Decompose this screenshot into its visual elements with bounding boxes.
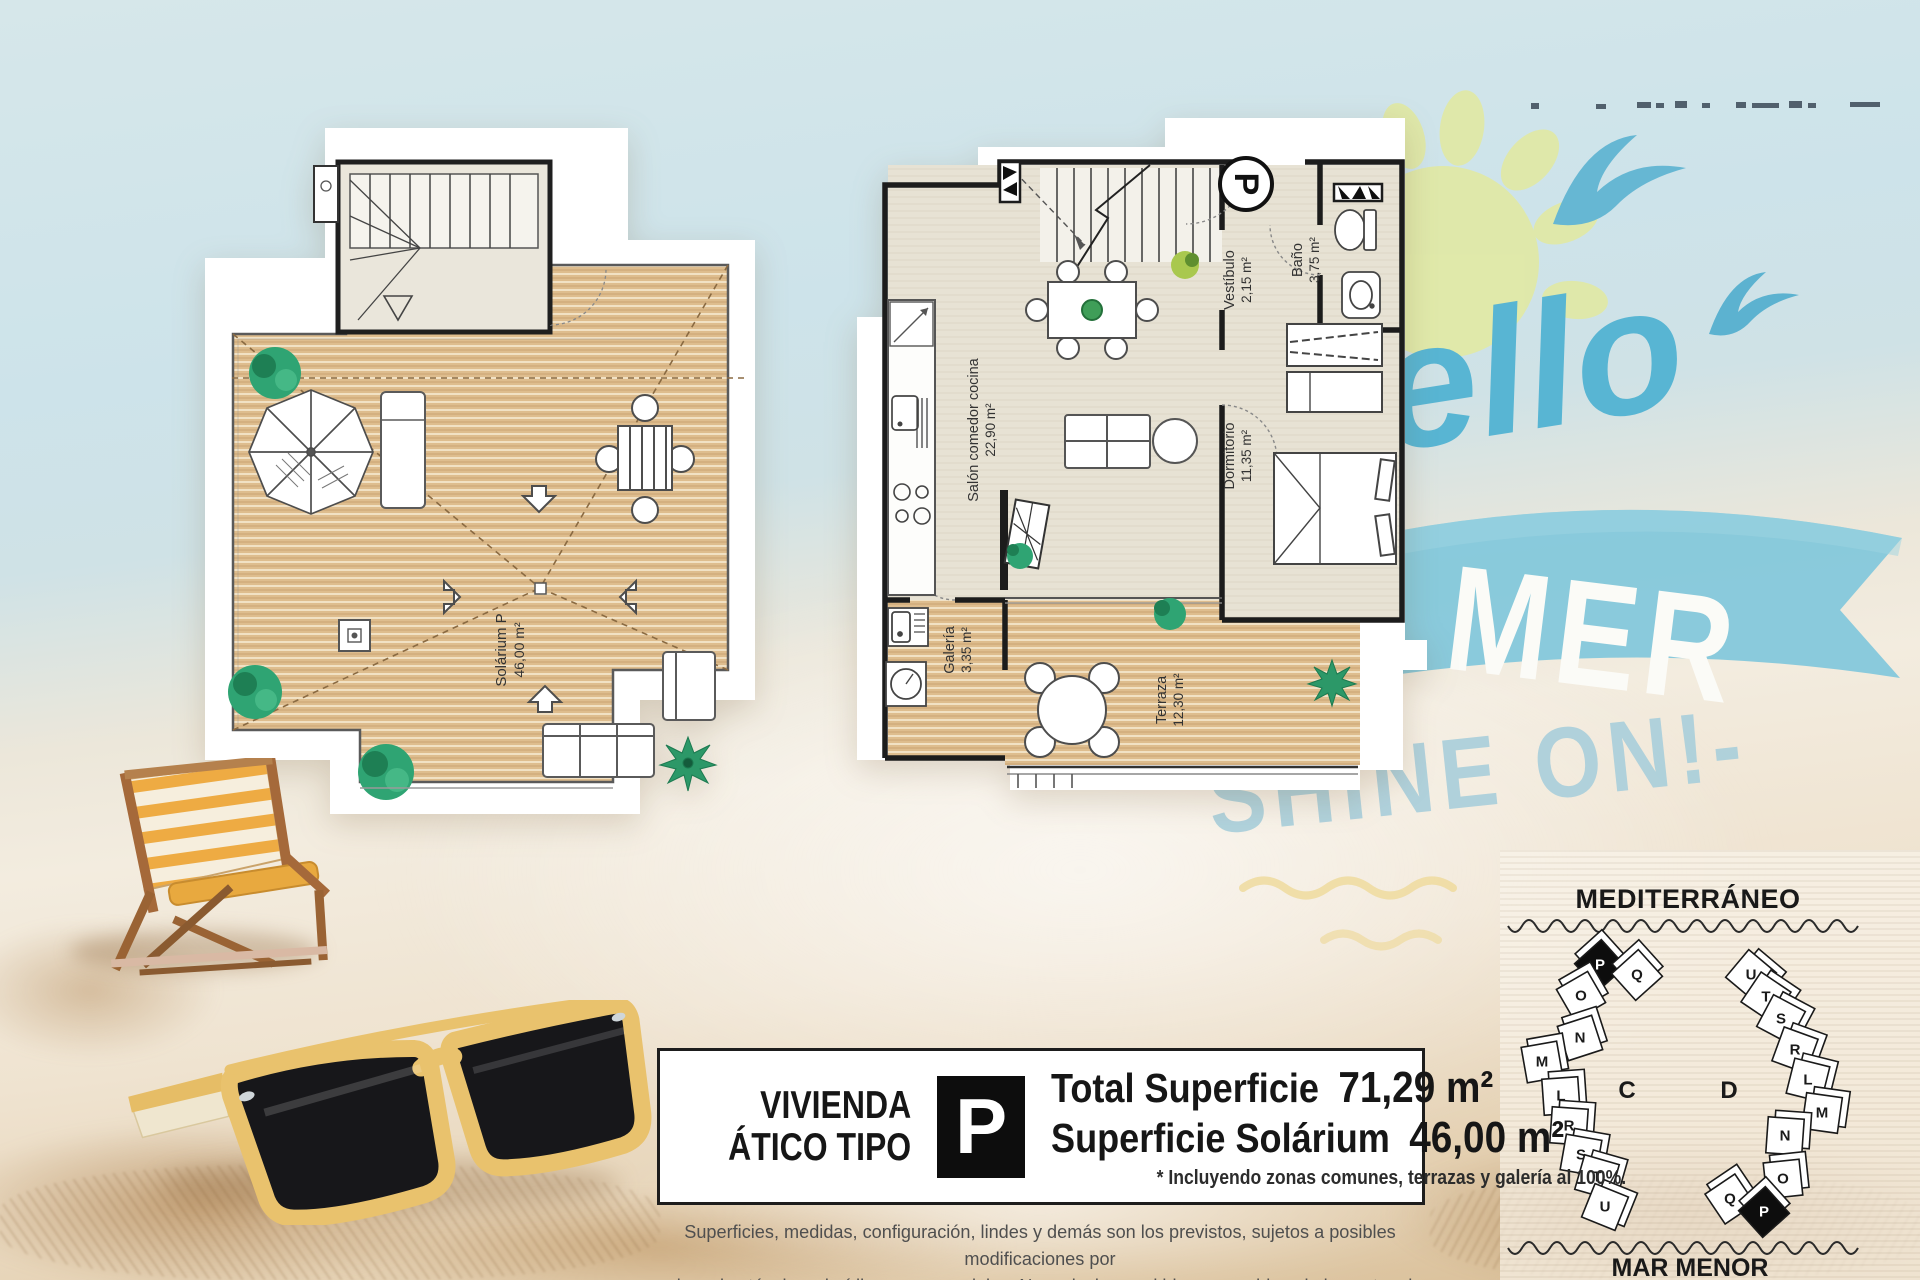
svg-text:N: N <box>1575 1030 1586 1047</box>
parking-circle-icon: P <box>1220 158 1272 210</box>
svg-text:Solárium P: Solárium P <box>493 613 510 686</box>
solarium-surface-value: 46,00 m² <box>1409 1113 1564 1163</box>
svg-text:O: O <box>1777 1171 1789 1188</box>
seagull-icon <box>1709 272 1799 335</box>
svg-text:N: N <box>1780 1128 1791 1145</box>
dwelling-type-label: VIVIENDA ÁTICO TIPO <box>728 1085 911 1169</box>
svg-text:11,35 m²: 11,35 m² <box>1239 429 1254 482</box>
solarium-deck <box>233 265 728 782</box>
apartment-floor-plan: P <box>850 110 1435 825</box>
svg-text:22,90 m²: 22,90 m² <box>983 403 998 457</box>
svg-text:Q: Q <box>1631 967 1643 984</box>
svg-text:2,15 m²: 2,15 m² <box>1239 257 1254 303</box>
solarium-surface-label: Superficie Solárium <box>1051 1115 1390 1162</box>
svg-text:L: L <box>1803 1072 1812 1089</box>
svg-text:P: P <box>1595 957 1605 974</box>
svg-text:M: M <box>1816 1105 1829 1122</box>
deckchair-photo <box>80 758 340 978</box>
star-plant <box>660 737 716 791</box>
svg-text:Salón comedor cocina: Salón comedor cocina <box>966 357 982 501</box>
svg-text:12,30 m²: 12,30 m² <box>1171 673 1186 727</box>
sea-north-label: MEDITERRÁNEO <box>1575 883 1800 914</box>
surface-figures: Total Superficie 71,29 m² Superficie Sol… <box>1051 1063 1626 1190</box>
svg-text:R: R <box>1790 1042 1801 1059</box>
type-badge: P <box>937 1076 1025 1178</box>
svg-text:46,00 m²: 46,00 m² <box>511 622 527 678</box>
svg-text:Q: Q <box>1724 1191 1736 1208</box>
kitchen-counter <box>888 300 935 595</box>
svg-text:Galería: Galería <box>942 625 958 673</box>
svg-text:Terraza: Terraza <box>1154 675 1170 724</box>
block-label-d: D <box>1720 1077 1737 1104</box>
sofa-set <box>1065 415 1197 468</box>
svg-text:P: P <box>1759 1204 1769 1221</box>
total-surface-label: Total Superficie <box>1051 1065 1319 1112</box>
legal-disclaimer: Superficies, medidas, configuración, lin… <box>648 1218 1432 1280</box>
shower-tray <box>1287 324 1382 366</box>
svg-text:Dormitorio: Dormitorio <box>1222 423 1238 490</box>
seagull-icon <box>1553 135 1686 225</box>
sun-lounger <box>381 392 425 508</box>
svg-text:Vestíbulo: Vestíbulo <box>1222 250 1238 310</box>
surface-footnote: * Incluyendo zonas comunes, terrazas y g… <box>1051 1167 1626 1190</box>
svg-text:3,35 m²: 3,35 m² <box>959 627 974 673</box>
svg-text:S: S <box>1776 1011 1786 1028</box>
double-bed <box>1274 453 1396 564</box>
svg-text:O: O <box>1575 988 1587 1005</box>
parasol-icon <box>249 390 373 514</box>
solarium-floor-plan: Solárium P 46,00 m² <box>198 120 778 820</box>
sea-south-label: MAR MENOR <box>1612 1254 1769 1280</box>
svg-text:U: U <box>1600 1199 1611 1216</box>
brochure-page: ello MER SHINE ON!- MEDITERRÁNEO PQONMLR… <box>0 0 1920 1280</box>
bench-bed <box>1287 372 1382 412</box>
svg-text:Baño: Baño <box>1290 243 1306 277</box>
cropped-header-fragments <box>1531 101 1880 109</box>
summary-box: VIVIENDA ÁTICO TIPO P Total Superficie 7… <box>657 1048 1425 1205</box>
sunglasses-photo <box>125 1000 655 1225</box>
utility-box <box>339 620 370 651</box>
squiggle-decor <box>1243 881 1453 947</box>
site-unit: N <box>1766 1110 1812 1156</box>
terrace-dining-set <box>1025 663 1119 757</box>
svg-text:3,75 m²: 3,75 m² <box>1307 237 1322 283</box>
svg-text:P: P <box>1227 173 1265 196</box>
total-surface-value: 71,29 m² <box>1339 1063 1494 1113</box>
